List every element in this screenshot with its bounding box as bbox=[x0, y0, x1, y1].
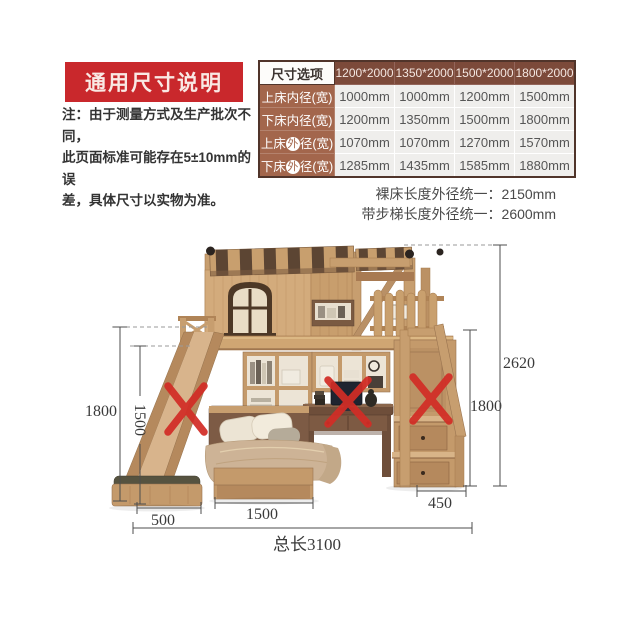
dim-total-length: 总长3100 bbox=[133, 522, 472, 554]
top-beam bbox=[330, 258, 410, 267]
slide-end-base bbox=[112, 484, 202, 506]
dim-label: 450 bbox=[428, 495, 452, 512]
storage-box bbox=[282, 370, 300, 384]
book-stack bbox=[251, 398, 271, 402]
dim-label: 1800 bbox=[470, 398, 502, 415]
finial bbox=[405, 250, 414, 259]
wall-shelf bbox=[312, 300, 354, 326]
dim-label: 2620 bbox=[503, 355, 535, 372]
dim-label: 总长3100 bbox=[273, 535, 341, 554]
box bbox=[344, 370, 359, 378]
shadow bbox=[386, 485, 462, 492]
book bbox=[250, 362, 255, 384]
book bbox=[256, 360, 261, 384]
bed-dimension-diagram: 1800 1500 500 1500 450 1800 bbox=[0, 0, 640, 640]
dim-label: 1800 bbox=[85, 403, 117, 420]
finial bbox=[206, 247, 215, 256]
finial bbox=[437, 249, 444, 256]
dim-total-height: 2620 bbox=[493, 245, 535, 486]
book bbox=[267, 361, 272, 384]
product-photo bbox=[109, 246, 466, 512]
arched-window bbox=[224, 282, 276, 339]
dim-right-bed-height: 1800 bbox=[463, 330, 502, 486]
dim-left-height: 1800 bbox=[85, 327, 127, 501]
slide bbox=[112, 316, 224, 506]
dim-label: 500 bbox=[151, 512, 175, 529]
dim-label: 1500 bbox=[131, 404, 148, 436]
dim-label: 1500 bbox=[246, 506, 278, 523]
clock bbox=[369, 361, 379, 371]
stair-post bbox=[400, 330, 410, 487]
book bbox=[262, 363, 266, 384]
